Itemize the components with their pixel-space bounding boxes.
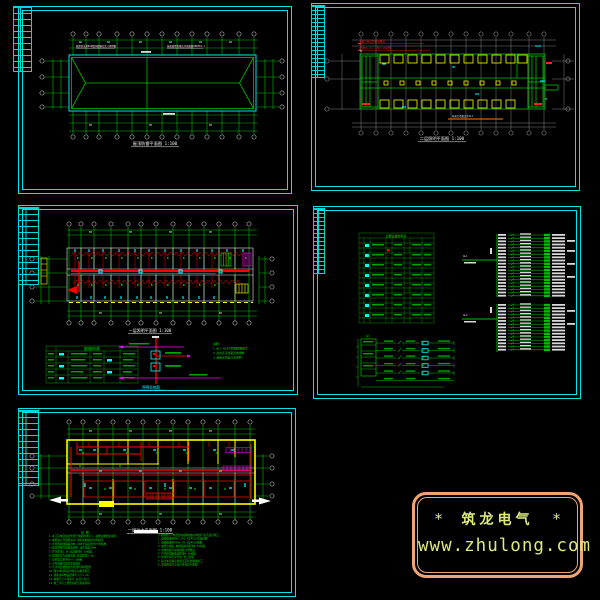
title-block-strip-lighting xyxy=(18,207,39,285)
floor2-plan-drawing: 干线沿吊顶内桥架敷设 支线BV-2×2.5穿PC16暗敷 桥架沿墙敷设至AL1 … xyxy=(312,4,579,190)
luminaire-boxes xyxy=(380,55,527,108)
note-line: 11.线路水平敷设距地不小于2.5m. xyxy=(49,573,90,577)
white-walls xyxy=(67,468,255,504)
note-line: 4.插座回路均设漏电保护,动作电流30mA. xyxy=(49,546,98,550)
title-block-strip-roof xyxy=(13,6,32,72)
note-line: 3.电话出线盒,电视插座均距地0.3m暗装. xyxy=(158,544,207,548)
zhulong-logo: * 筑龙电气 * www.zhulong.com xyxy=(412,492,583,578)
panel-system-diagrams: 主要设备材料表 AL1 AL2 xyxy=(313,206,581,399)
feeder-label-AL2: AL2 xyxy=(463,313,468,317)
power-plan-drawing: 一层动力平面图 1:100 说 明 1.本工程电源由室外低压电缆埋地引入,进线处… xyxy=(19,409,295,596)
roof-note-left: 避雷带采用Φ10镀锌圆钢沿女儿墙明敷 xyxy=(76,44,117,48)
red-note-1: 干线沿吊顶内桥架敷设 xyxy=(359,40,385,44)
roof-plan-drawing: 避雷带采用Φ10镀锌圆钢沿女儿墙明敷 屋面避雷带做法详见图集99D501-1 屋… xyxy=(19,7,291,193)
panel-power-plan: 一层动力平面图 1:100 说 明 1.本工程电源由室外低压电缆埋地引入,进线处… xyxy=(18,408,296,597)
note-line: 8.卫生间做局部等电位联结. xyxy=(49,561,82,565)
note-line: 说明: xyxy=(213,342,221,346)
plan-notes: 说明: 1.WL1-WL8为照明回路编号. 2.虚线表示线路沿地暗敷. 3.其余… xyxy=(213,342,250,360)
legend-table-title: 图例材料表 xyxy=(84,346,101,351)
note-line: 2.电缆进户穿钢管保护,钢管两端做好防水处理. xyxy=(49,538,105,542)
cable-tray-note: 桥架沿墙敷设至AL1 xyxy=(452,114,474,118)
magenta-equipment xyxy=(223,448,251,472)
roof-outline xyxy=(69,55,256,111)
title-block-strip-floor2 xyxy=(311,5,325,78)
star-left-icon: * xyxy=(434,510,443,528)
roof-note-right: 屋面避雷带做法详见图集99D501-1 xyxy=(167,44,205,48)
cyan-devices xyxy=(75,249,243,299)
red-note-2: 支线BV-2×2.5穿PC16暗敷 xyxy=(359,46,391,50)
title-block-strip-power xyxy=(18,410,39,486)
note-line: 3.其余详见设计总说明. xyxy=(213,356,244,360)
white-highlight-bar xyxy=(134,530,158,533)
note-line: 1.本工程电源由室外低压电缆埋地引入,进线处做重复接地. xyxy=(49,534,118,538)
logo-brand-line: * 筑龙电气 * xyxy=(418,509,577,529)
note-line: 6.配电箱均为嵌墙暗装,底边距地1.5m. xyxy=(49,554,95,558)
note-line: 3.室内照明线路采用BV-500型铜芯线穿PC管暗敷. xyxy=(49,542,108,546)
system-diagram-drawing: 主要设备材料表 AL1 AL2 xyxy=(314,207,580,398)
roof-plan-title: 屋顶防雷平面图 1:100 xyxy=(133,140,178,147)
lighting-plan-title: 一层照明平面图 1:100 xyxy=(129,327,172,333)
note-line: 5.户内弱电箱底边距地0.5m暗装. xyxy=(158,552,197,556)
notes-left-column: 1.本工程电源由室外低压电缆埋地引入,进线处做重复接地. 2.电缆进户穿钢管保护… xyxy=(49,534,118,585)
note-line: 13.施工中与土建密切配合预留预埋. xyxy=(49,581,92,585)
logo-url-text: www.zhulong.com xyxy=(418,536,577,556)
hatch-blocks xyxy=(41,253,253,303)
note-line: 2.电视线采用SYKV-75-5穿PC20暗敷. xyxy=(158,540,204,544)
riser-title: 照明系统图 xyxy=(142,385,160,390)
axis-grid xyxy=(35,227,269,321)
distribution-diagram-AL2: AL2 xyxy=(462,303,575,352)
panel-floor2-plan: 干线沿吊顶内桥架敷设 支线BV-2×2.5穿PC16暗敷 桥架沿墙敷设至AL1 … xyxy=(311,3,580,191)
floor2-plan-title: 二层照明平面图 1:100 xyxy=(420,136,465,142)
cad-sheet-collage: 避雷带采用Φ10镀锌圆钢沿女儿墙明敷 屋面避雷带做法详见图集99D501-1 屋… xyxy=(0,0,600,600)
power-panel-diagram: AP xyxy=(356,334,454,387)
lighting-plan-drawing: 一层照明平面图 1:100 图例材料表 xyxy=(19,206,297,394)
note-line: 1.电话线采用RVS-2×0.5穿PC16沿墙暗敷. xyxy=(158,537,209,541)
star-right-icon: * xyxy=(552,510,561,528)
red-annotations: 干线沿吊顶内桥架敷设 支线BV-2×2.5穿PC16暗敷 xyxy=(357,40,552,106)
note-line: 9.凡穿墙及楼板处的管线均预埋套管. xyxy=(49,565,93,569)
note-line: ※弱电部分:电话及电视系统由当地部门负责设计施工. xyxy=(158,533,221,537)
cyan-devices xyxy=(79,450,245,488)
distribution-diagram-AL1: AL1 xyxy=(462,233,575,297)
feeder-label-AL1: AL1 xyxy=(463,254,468,258)
note-line: 6.预埋管均应穿带线,管口封堵. xyxy=(158,555,195,559)
note-line: 5.开关距地1.3m,插座距地0.3m暗装. xyxy=(49,550,94,554)
note-line: 7.其余未尽事宜按规范及标准图集施工. xyxy=(158,559,204,563)
title-block-strip-system xyxy=(313,208,325,274)
note-line: 10.图中未注明者均按有关规范施工. xyxy=(49,569,92,573)
note-line: 12.本图尺寸以毫米计,标高以米计. xyxy=(49,577,91,581)
note-line: 4.弱电线路与强电线路分管敷设. xyxy=(158,548,196,552)
note-line: 1.WL1-WL8为照明回路编号. xyxy=(213,347,250,351)
zhulong-logo-inner-frame: * 筑龙电气 * www.zhulong.com xyxy=(417,497,578,573)
notes-heading: 说 明 xyxy=(81,530,89,535)
note-line: 7.接地型式采用TN-C-S系统. xyxy=(49,557,84,561)
logo-brand-text: 筑龙电气 xyxy=(462,509,534,529)
notes-right-column: ※弱电部分:电话及电视系统由当地部门负责设计施工. 1.电话线采用RVS-2×0… xyxy=(158,533,221,567)
panel-lighting-plan: 一层照明平面图 1:100 图例材料表 xyxy=(18,205,298,395)
note-line: 2.虚线表示线路沿地暗敷. xyxy=(213,351,246,355)
axis-grid xyxy=(45,37,279,134)
legend-table: 图例材料表 xyxy=(46,346,138,383)
material-table: 主要设备材料表 xyxy=(359,233,434,323)
panel-roof-plan: 避雷带采用Φ10镀锌圆钢沿女儿墙明敷 屋面避雷带做法详见图集99D501-1 屋… xyxy=(18,6,292,194)
note-line: 8.本说明未尽之处详见各层平面图. xyxy=(158,563,199,567)
material-table-title: 主要设备材料表 xyxy=(385,233,406,238)
panel-label-AP: AP xyxy=(366,334,370,338)
dimension-text-marks xyxy=(79,42,232,126)
